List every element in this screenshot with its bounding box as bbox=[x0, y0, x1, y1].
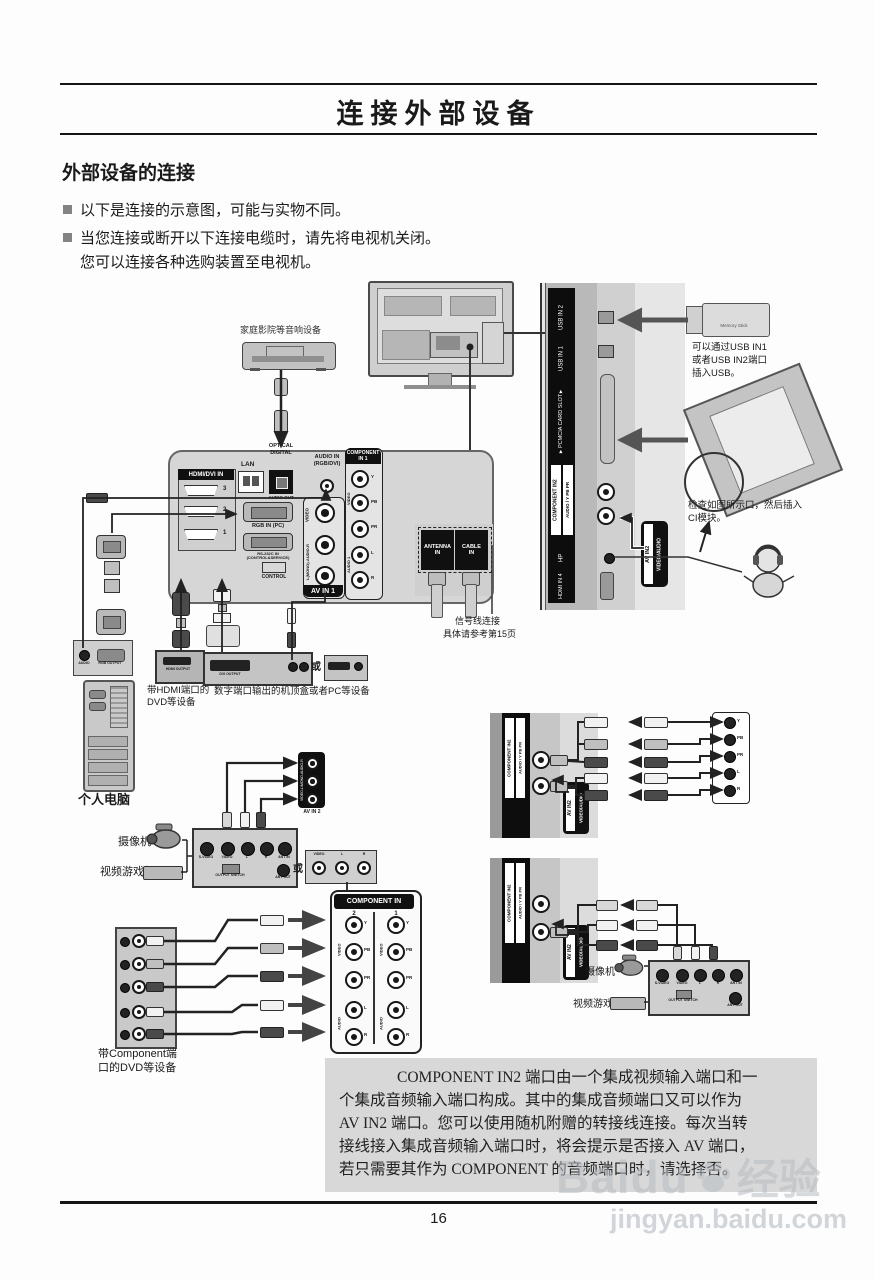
rca-plug-audio-l bbox=[240, 812, 250, 828]
dvd-port-dot bbox=[120, 1008, 130, 1018]
tv-side-flap bbox=[482, 322, 504, 364]
game-console-icon bbox=[143, 866, 183, 880]
note-line: AV IN2 端口。您可以使用随机附赠的转接线连接。每次当转 bbox=[339, 1112, 803, 1135]
dvd-pr-jack bbox=[132, 980, 146, 994]
pc-tower-slat bbox=[88, 775, 128, 786]
optical-cable-connector bbox=[274, 410, 288, 434]
usb-stick-label: Memory Stick bbox=[704, 324, 764, 329]
dvd-r-jack bbox=[132, 1027, 146, 1041]
mixer-ant-out-label: ANT OUT bbox=[270, 876, 296, 880]
usb-note-line3: 插入USB。 bbox=[692, 369, 740, 379]
hdmi-device-port-label: HDMI OUTPUT bbox=[157, 668, 199, 672]
right-panel-jack bbox=[724, 768, 736, 780]
rca-plug bbox=[146, 1029, 164, 1039]
rca-plug bbox=[146, 982, 164, 992]
device-switch-label: OUTPUT SWITCH bbox=[666, 999, 700, 1003]
right-panel-row-label: L bbox=[737, 770, 740, 775]
cable-plug bbox=[644, 773, 668, 784]
alt-av-jack-label: L bbox=[336, 853, 348, 857]
side-detail-edge bbox=[490, 858, 502, 983]
comp-in1-l bbox=[387, 1001, 405, 1019]
control-label: CONTROL bbox=[256, 575, 292, 580]
hp-label: HP bbox=[548, 548, 575, 568]
right-panel-jack bbox=[724, 785, 736, 797]
component-in2-sub-label: AUDIO / Y PB PR bbox=[516, 718, 525, 798]
lan-port-pin bbox=[252, 476, 259, 486]
manual-page: 连接外部设备 外部设备的连接 以下是连接的示意图，可能与实物不同。 当您连接或断… bbox=[0, 0, 875, 1280]
alt-audio-jack bbox=[354, 662, 363, 671]
bullet-marker bbox=[63, 233, 72, 242]
mixer-audio-l-jack bbox=[241, 842, 255, 856]
rs232-port-inner bbox=[251, 537, 287, 548]
mixer-svideo-jack bbox=[200, 842, 214, 856]
component-in2-sub-label: AUDIO / Y PB PR bbox=[516, 863, 525, 943]
header-rule-bottom bbox=[60, 133, 817, 135]
comp-in1-r bbox=[387, 1028, 405, 1046]
pc-audio-jack bbox=[79, 650, 90, 661]
av-mini-label: AV IN 2 bbox=[296, 810, 328, 815]
comp-audio-group: AUDIO bbox=[378, 1006, 385, 1042]
or-label: 或 bbox=[311, 658, 321, 673]
adapter-socket bbox=[584, 790, 608, 801]
tv-stand-base bbox=[404, 385, 476, 389]
pc-tower-port bbox=[89, 690, 106, 699]
audio-in-label-2: (RGB/DVI) bbox=[308, 462, 346, 468]
component-in-panel bbox=[330, 890, 422, 1054]
vga-connector-inner bbox=[103, 541, 121, 553]
comp1-pb-jack bbox=[351, 494, 369, 512]
hdmi-port-number: 2 bbox=[223, 507, 226, 513]
usb-note-line2: 或者USB IN2端口 bbox=[692, 356, 767, 366]
comp1-audio-group-label: AUDIO 1 bbox=[346, 546, 352, 584]
usb1-label: USB IN 1 bbox=[548, 340, 575, 376]
av-mini-video-jack bbox=[306, 757, 319, 770]
rca-plug bbox=[260, 943, 284, 954]
pc-tower-slat bbox=[88, 749, 128, 760]
comp-video-group: VIDEO bbox=[336, 932, 343, 968]
adapter-plug bbox=[550, 927, 568, 938]
device-jack-label: S-VIDEO bbox=[652, 982, 672, 986]
cable-plug bbox=[636, 940, 658, 951]
component-in2-sub-label: AUDIO / Y PB PR bbox=[563, 465, 573, 535]
dvi-connector bbox=[206, 625, 240, 647]
usb-stick-body bbox=[702, 303, 770, 337]
comp-jack-label: Y bbox=[364, 921, 367, 926]
adapter-socket bbox=[596, 900, 618, 911]
adapter-socket bbox=[596, 920, 618, 931]
hdmi-device-label-line2: DVD等设备 bbox=[147, 698, 196, 708]
component-in2-label: COMPONENT IN2 bbox=[551, 465, 561, 535]
dvd-l-jack bbox=[132, 1005, 146, 1019]
pc-audio-label: AUDIO bbox=[74, 662, 94, 666]
component-in1-title-line2: IN 1 bbox=[358, 456, 367, 462]
camcorder-label-2: 摄像机 bbox=[585, 963, 615, 978]
mixer-ant-in-jack bbox=[278, 842, 292, 856]
component-in-title: COMPONENT IN bbox=[334, 894, 414, 909]
watermark-url: jingyan.baidu.com bbox=[610, 1204, 847, 1235]
cable-plug bbox=[644, 717, 668, 728]
comp-in2-video-jack bbox=[532, 751, 550, 769]
bullet-1: 以下是连接的示意图，可能与实物不同。 bbox=[80, 199, 350, 220]
av-mini-r-jack bbox=[306, 793, 319, 806]
adapter-plug bbox=[550, 781, 568, 792]
comp-in2-pb bbox=[345, 943, 363, 961]
device-ant-out-label: ANT OUT bbox=[722, 1004, 748, 1008]
pc-tower-port bbox=[89, 702, 106, 711]
pcmcia-label: ▼PCMCIA CARD SLOT▼ bbox=[548, 378, 575, 464]
right-panel-row-label: PR bbox=[737, 753, 743, 758]
comp-in2-audio-jack bbox=[532, 777, 550, 795]
av-in1-audio-label: L(MONO)-AUDIO-R bbox=[304, 534, 312, 590]
tv-rear-recess bbox=[450, 296, 496, 316]
hdmi4-port bbox=[600, 572, 614, 600]
lan-port bbox=[238, 471, 264, 493]
component-in-divider bbox=[373, 912, 375, 1044]
vga-connector-inner bbox=[103, 616, 121, 629]
hdmi-device-label-line1: 带HDMI端口的 bbox=[147, 686, 209, 696]
vga-adapter bbox=[104, 561, 120, 575]
comp-jack-label: R bbox=[364, 1033, 367, 1038]
bullet-marker bbox=[63, 205, 72, 214]
adapter-socket bbox=[584, 739, 608, 750]
cable-connector-body bbox=[465, 584, 477, 618]
camcorder-icon bbox=[614, 953, 646, 979]
rca-plug bbox=[260, 915, 284, 926]
dvd-y-jack bbox=[132, 934, 146, 948]
mixer-audio-r-jack bbox=[260, 842, 274, 856]
game-console-icon bbox=[610, 997, 646, 1010]
hdmi-cable-neck bbox=[176, 618, 186, 628]
digital-device-label: 数字端口输出的机顶盒或者PC等设备 bbox=[214, 687, 370, 697]
rca-plug bbox=[146, 1007, 164, 1017]
rca-plug-down bbox=[673, 946, 682, 960]
audio-in-label-1: AUDIO IN bbox=[308, 455, 346, 461]
av-in1-title: AV IN 1 bbox=[303, 585, 343, 597]
component-in2-audio-jack bbox=[597, 507, 615, 525]
rca-plug bbox=[146, 936, 164, 946]
av-in2-label: AV IN2 bbox=[644, 524, 653, 584]
dvd-port-dot bbox=[120, 983, 130, 993]
or-label-2: 或 bbox=[293, 860, 303, 875]
component-in2-label: COMPONENT IN2 bbox=[505, 863, 514, 943]
side-detail-band bbox=[530, 858, 560, 983]
optical-port-inner bbox=[276, 477, 288, 489]
comp1-jack-label: L bbox=[371, 551, 374, 556]
watermark-brand: Baidu bbox=[556, 1150, 689, 1204]
av-mini-l-jack bbox=[306, 775, 319, 788]
rca-plug-video bbox=[222, 812, 232, 828]
av-in1-video-label: VIDEO bbox=[304, 500, 312, 530]
comp-in2-r bbox=[345, 1028, 363, 1046]
device-jack-label: ANT IN bbox=[728, 982, 744, 986]
comp1-pr-jack bbox=[351, 520, 369, 538]
tv-port-recess-inner bbox=[436, 336, 460, 350]
rca-plug bbox=[260, 1027, 284, 1038]
mixer-jack-label: ANT IN bbox=[276, 856, 292, 860]
header-rule-top bbox=[60, 83, 817, 85]
mixer-jack-label: S-VIDEO bbox=[196, 856, 216, 860]
rca-plug-down bbox=[709, 946, 718, 960]
usb1-port bbox=[598, 345, 614, 358]
comp-in2-l bbox=[345, 1001, 363, 1019]
component-in2-label: COMPONENT IN2 bbox=[505, 718, 514, 798]
device-jack-label: L bbox=[694, 982, 706, 986]
headphone-jack bbox=[604, 553, 615, 564]
rca-plug bbox=[146, 959, 164, 969]
cable-plug bbox=[644, 739, 668, 750]
right-panel-row-label: PB bbox=[737, 736, 743, 741]
page-title: 连接外部设备 bbox=[60, 92, 817, 128]
cable-plug bbox=[636, 920, 658, 931]
dvi-cable-plug bbox=[213, 589, 231, 602]
control-port bbox=[262, 562, 286, 573]
pc-tower-slat bbox=[88, 762, 128, 773]
alt-av-l-jack bbox=[335, 861, 349, 875]
dvd-port-dot bbox=[120, 1030, 130, 1040]
comp1-r-jack bbox=[351, 571, 369, 589]
av-in1-audio-r-jack bbox=[315, 566, 335, 586]
antenna-in-label: ANTENNA IN bbox=[421, 530, 454, 570]
mixer-jack-label: L bbox=[241, 856, 253, 860]
watermark-brand-cn: 经验 bbox=[737, 1146, 821, 1207]
optical-label-2: DIGITAL bbox=[264, 451, 298, 457]
cartoon-figure bbox=[740, 542, 802, 600]
signal-note-line2: 具体请参考第15页 bbox=[443, 630, 516, 639]
component-device-label-line2: 口的DVD等设备 bbox=[98, 1063, 176, 1075]
tv-rear-recess bbox=[384, 296, 442, 316]
comp-jack-label: L bbox=[406, 1006, 409, 1011]
alt-av-r-jack bbox=[357, 861, 371, 875]
rgb-in-port-inner bbox=[251, 507, 287, 519]
hdmi-port bbox=[184, 506, 218, 517]
vga-adapter bbox=[104, 579, 120, 593]
comp-jack-label: PB bbox=[406, 948, 412, 953]
comp-in2-pr bbox=[345, 971, 363, 989]
side-detail-band bbox=[530, 713, 560, 838]
comp1-jack-label: PR bbox=[371, 525, 377, 530]
usb-note-line1: 可以通过USB IN1 bbox=[692, 343, 767, 353]
pc-tower-slat bbox=[88, 736, 128, 747]
rca-plug-audio-r bbox=[256, 812, 266, 828]
ci-note-line1: 检查如图所示口，然后插入 bbox=[688, 501, 802, 511]
alt-av-jack-label: R bbox=[358, 853, 370, 857]
adapter-socket bbox=[584, 773, 608, 784]
rca-plug-down bbox=[691, 946, 700, 960]
antenna-connector-body bbox=[431, 584, 443, 618]
note-line: 个集成音频输入端口构成。其中的集成音频端口又可以作为 bbox=[339, 1089, 803, 1112]
comp-in2-video-jack bbox=[532, 895, 550, 913]
rca-plug-red bbox=[287, 632, 296, 648]
adapter-socket bbox=[584, 717, 608, 728]
device-jack-label: VIDEO bbox=[673, 982, 691, 986]
audio-cable-plug bbox=[86, 493, 108, 503]
alt-av-video-jack bbox=[312, 861, 326, 875]
usb2-port bbox=[598, 311, 614, 324]
mixer-jack-label: R bbox=[260, 856, 272, 860]
cable-in-label: CABLE IN bbox=[455, 530, 488, 570]
comp1-jack-label: Y bbox=[371, 475, 374, 480]
pc-label: 个人电脑 bbox=[78, 789, 130, 808]
adapter-socket bbox=[596, 940, 618, 951]
bullet-2-line2: 您可以连接各种选购装置至电视机。 bbox=[80, 251, 320, 272]
right-panel-jack bbox=[724, 751, 736, 763]
rca-plug bbox=[260, 971, 284, 982]
comp1-video-group-label: VIDEO bbox=[346, 482, 352, 516]
dvd-pb-jack bbox=[132, 957, 146, 971]
alt-av-jack-label: VIDEO bbox=[310, 853, 328, 857]
stb-audio-jack bbox=[299, 662, 309, 672]
rca-plug bbox=[260, 1000, 284, 1011]
device-jack-label: R bbox=[712, 982, 724, 986]
audio-in-jack bbox=[320, 479, 334, 493]
av-mini-side-label: VIDEO-L/MONO-AUDIO-R bbox=[299, 754, 306, 806]
hdmi-port-number: 3 bbox=[223, 486, 226, 492]
comp-jack-label: L bbox=[364, 1006, 367, 1011]
soundbar-slot bbox=[252, 356, 324, 362]
ci-note-line2: CI模块。 bbox=[688, 514, 726, 524]
tv-rear-recess bbox=[382, 330, 430, 360]
audio-device-label: 家庭影院等音响设备 bbox=[240, 326, 321, 335]
soundbar-foot bbox=[250, 368, 260, 371]
usb2-label: USB IN 2 bbox=[548, 296, 575, 338]
side-detail-edge bbox=[490, 713, 502, 838]
hdmi-group-label: HDMI/DVI IN bbox=[178, 469, 234, 480]
hdmi-cable-plug bbox=[172, 592, 190, 616]
hdmi-port-number: 1 bbox=[223, 530, 226, 536]
mixer-switch-label: OUTPUT SWITCH bbox=[212, 874, 248, 878]
comp-in2-y bbox=[345, 916, 363, 934]
stb-dvi-port-label: DVI OUTPUT bbox=[208, 673, 252, 677]
comp-jack-label: R bbox=[406, 1033, 409, 1038]
rs232-label: RS-232C IN (CONTROL&SERVICE) bbox=[237, 552, 299, 560]
comp-audio-group: AUDIO bbox=[336, 1006, 343, 1042]
right-panel-row-label: Y bbox=[737, 719, 740, 724]
cable-label-line2: IN bbox=[469, 550, 475, 556]
pc-rgb-label: RGB OUTPUT bbox=[92, 662, 128, 666]
signal-note-line1: 信号线连接 bbox=[455, 617, 500, 626]
lan-label: LAN bbox=[241, 462, 254, 469]
comp1-y-jack bbox=[351, 470, 369, 488]
component-in2-video-jack bbox=[597, 483, 615, 501]
bullet-2-line1: 当您连接或断开以下连接电缆时，请先将电视机关闭。 bbox=[80, 227, 440, 248]
audio-out-label: AUDIO OUT bbox=[263, 496, 299, 501]
note-line: COMPONENT IN2 端口由一个集成视频输入端口和一 bbox=[339, 1066, 803, 1089]
comp-in2-audio-jack bbox=[532, 923, 550, 941]
dvd-port-dot bbox=[120, 960, 130, 970]
pc-tower-vents bbox=[110, 686, 128, 728]
cable-plug bbox=[644, 790, 668, 801]
comp-in1-y bbox=[387, 916, 405, 934]
comp-in1-pb bbox=[387, 943, 405, 961]
hdmi4-label: HDMI IN 4 bbox=[548, 570, 575, 602]
comp-jack-label: PR bbox=[364, 976, 370, 981]
av-in2-label: AV IN2 bbox=[566, 785, 575, 831]
adapter-plug bbox=[550, 755, 568, 766]
hdmi-cable-plug bbox=[172, 630, 190, 648]
rca-plug-white bbox=[287, 608, 296, 624]
comp-jack-label: PB bbox=[364, 948, 370, 953]
soundbar-foot bbox=[316, 368, 326, 371]
right-panel-row-label: R bbox=[737, 787, 740, 792]
adapter-socket bbox=[584, 757, 608, 768]
pcmcia-slot bbox=[600, 374, 615, 464]
mixer-video-jack bbox=[221, 842, 235, 856]
comp-in1-pr bbox=[387, 971, 405, 989]
av-in1-video-jack bbox=[315, 503, 335, 523]
dvi-cable-neck bbox=[218, 604, 227, 612]
av-in1-audio-l-jack bbox=[315, 535, 335, 555]
dvd-port-dot bbox=[120, 937, 130, 947]
lan-port-pin bbox=[243, 476, 250, 486]
comp1-l-jack bbox=[351, 546, 369, 564]
stb-dvi-port bbox=[210, 660, 250, 671]
hdmi-port bbox=[184, 485, 218, 496]
right-panel-jack bbox=[724, 734, 736, 746]
alt-dvi-port bbox=[328, 662, 350, 670]
comp-video-group: VIDEO bbox=[378, 932, 385, 968]
right-panel-jack bbox=[724, 717, 736, 729]
antenna-label-line2: IN bbox=[435, 550, 441, 556]
av-in2-sub-label: VIDEO/AUDIO bbox=[655, 524, 665, 584]
comp1-jack-label: R bbox=[371, 576, 374, 581]
comp-jack-label: Y bbox=[406, 921, 409, 926]
section-heading: 外部设备的连接 bbox=[62, 158, 195, 185]
watermark: Baidu 经验 bbox=[556, 1146, 821, 1207]
optical-cable-connector bbox=[274, 378, 288, 396]
component-in1-title: COMPONENT IN 1 bbox=[345, 448, 381, 464]
comp-jack-label: PR bbox=[406, 976, 412, 981]
camcorder-icon bbox=[146, 822, 184, 852]
cable-plug bbox=[644, 757, 668, 768]
rgb-in-label: RGB IN (PC) bbox=[240, 524, 296, 530]
mixer-jack-label: VIDEO bbox=[218, 856, 236, 860]
hdmi-device-port bbox=[163, 657, 191, 665]
comp1-jack-label: PB bbox=[371, 500, 377, 505]
dvi-adapter bbox=[213, 613, 231, 623]
optical-label-1: OPTICAL bbox=[264, 444, 298, 450]
paw-icon bbox=[693, 1157, 733, 1197]
hdmi-port bbox=[184, 529, 218, 540]
cable-plug bbox=[636, 900, 658, 911]
stb-audio-jack bbox=[288, 662, 298, 672]
component-device-label-line1: 带Component端 bbox=[98, 1049, 177, 1061]
